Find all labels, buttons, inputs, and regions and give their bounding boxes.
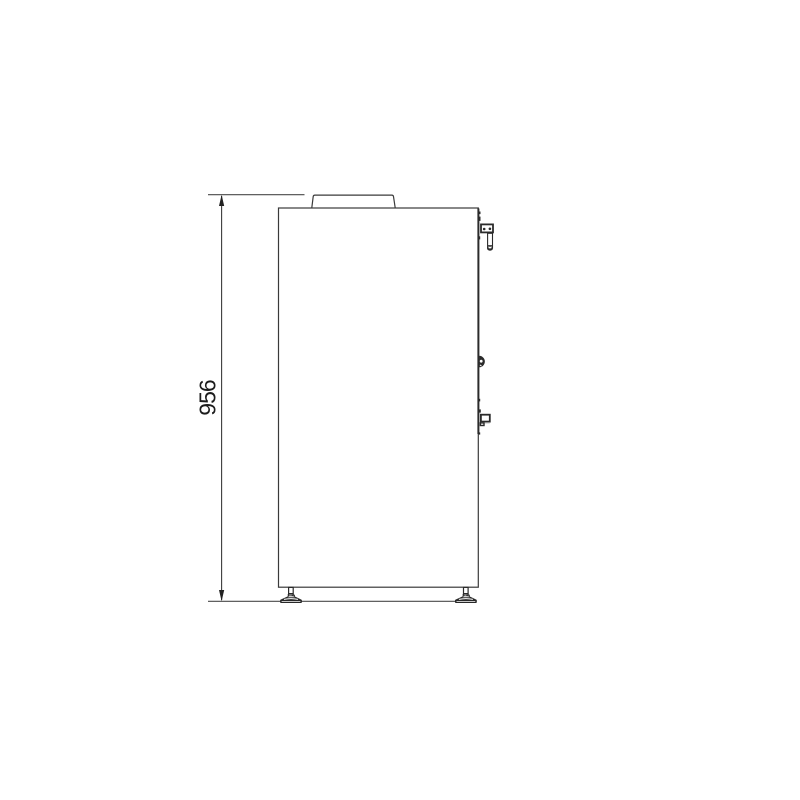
svg-text:956: 956 [195, 380, 221, 416]
